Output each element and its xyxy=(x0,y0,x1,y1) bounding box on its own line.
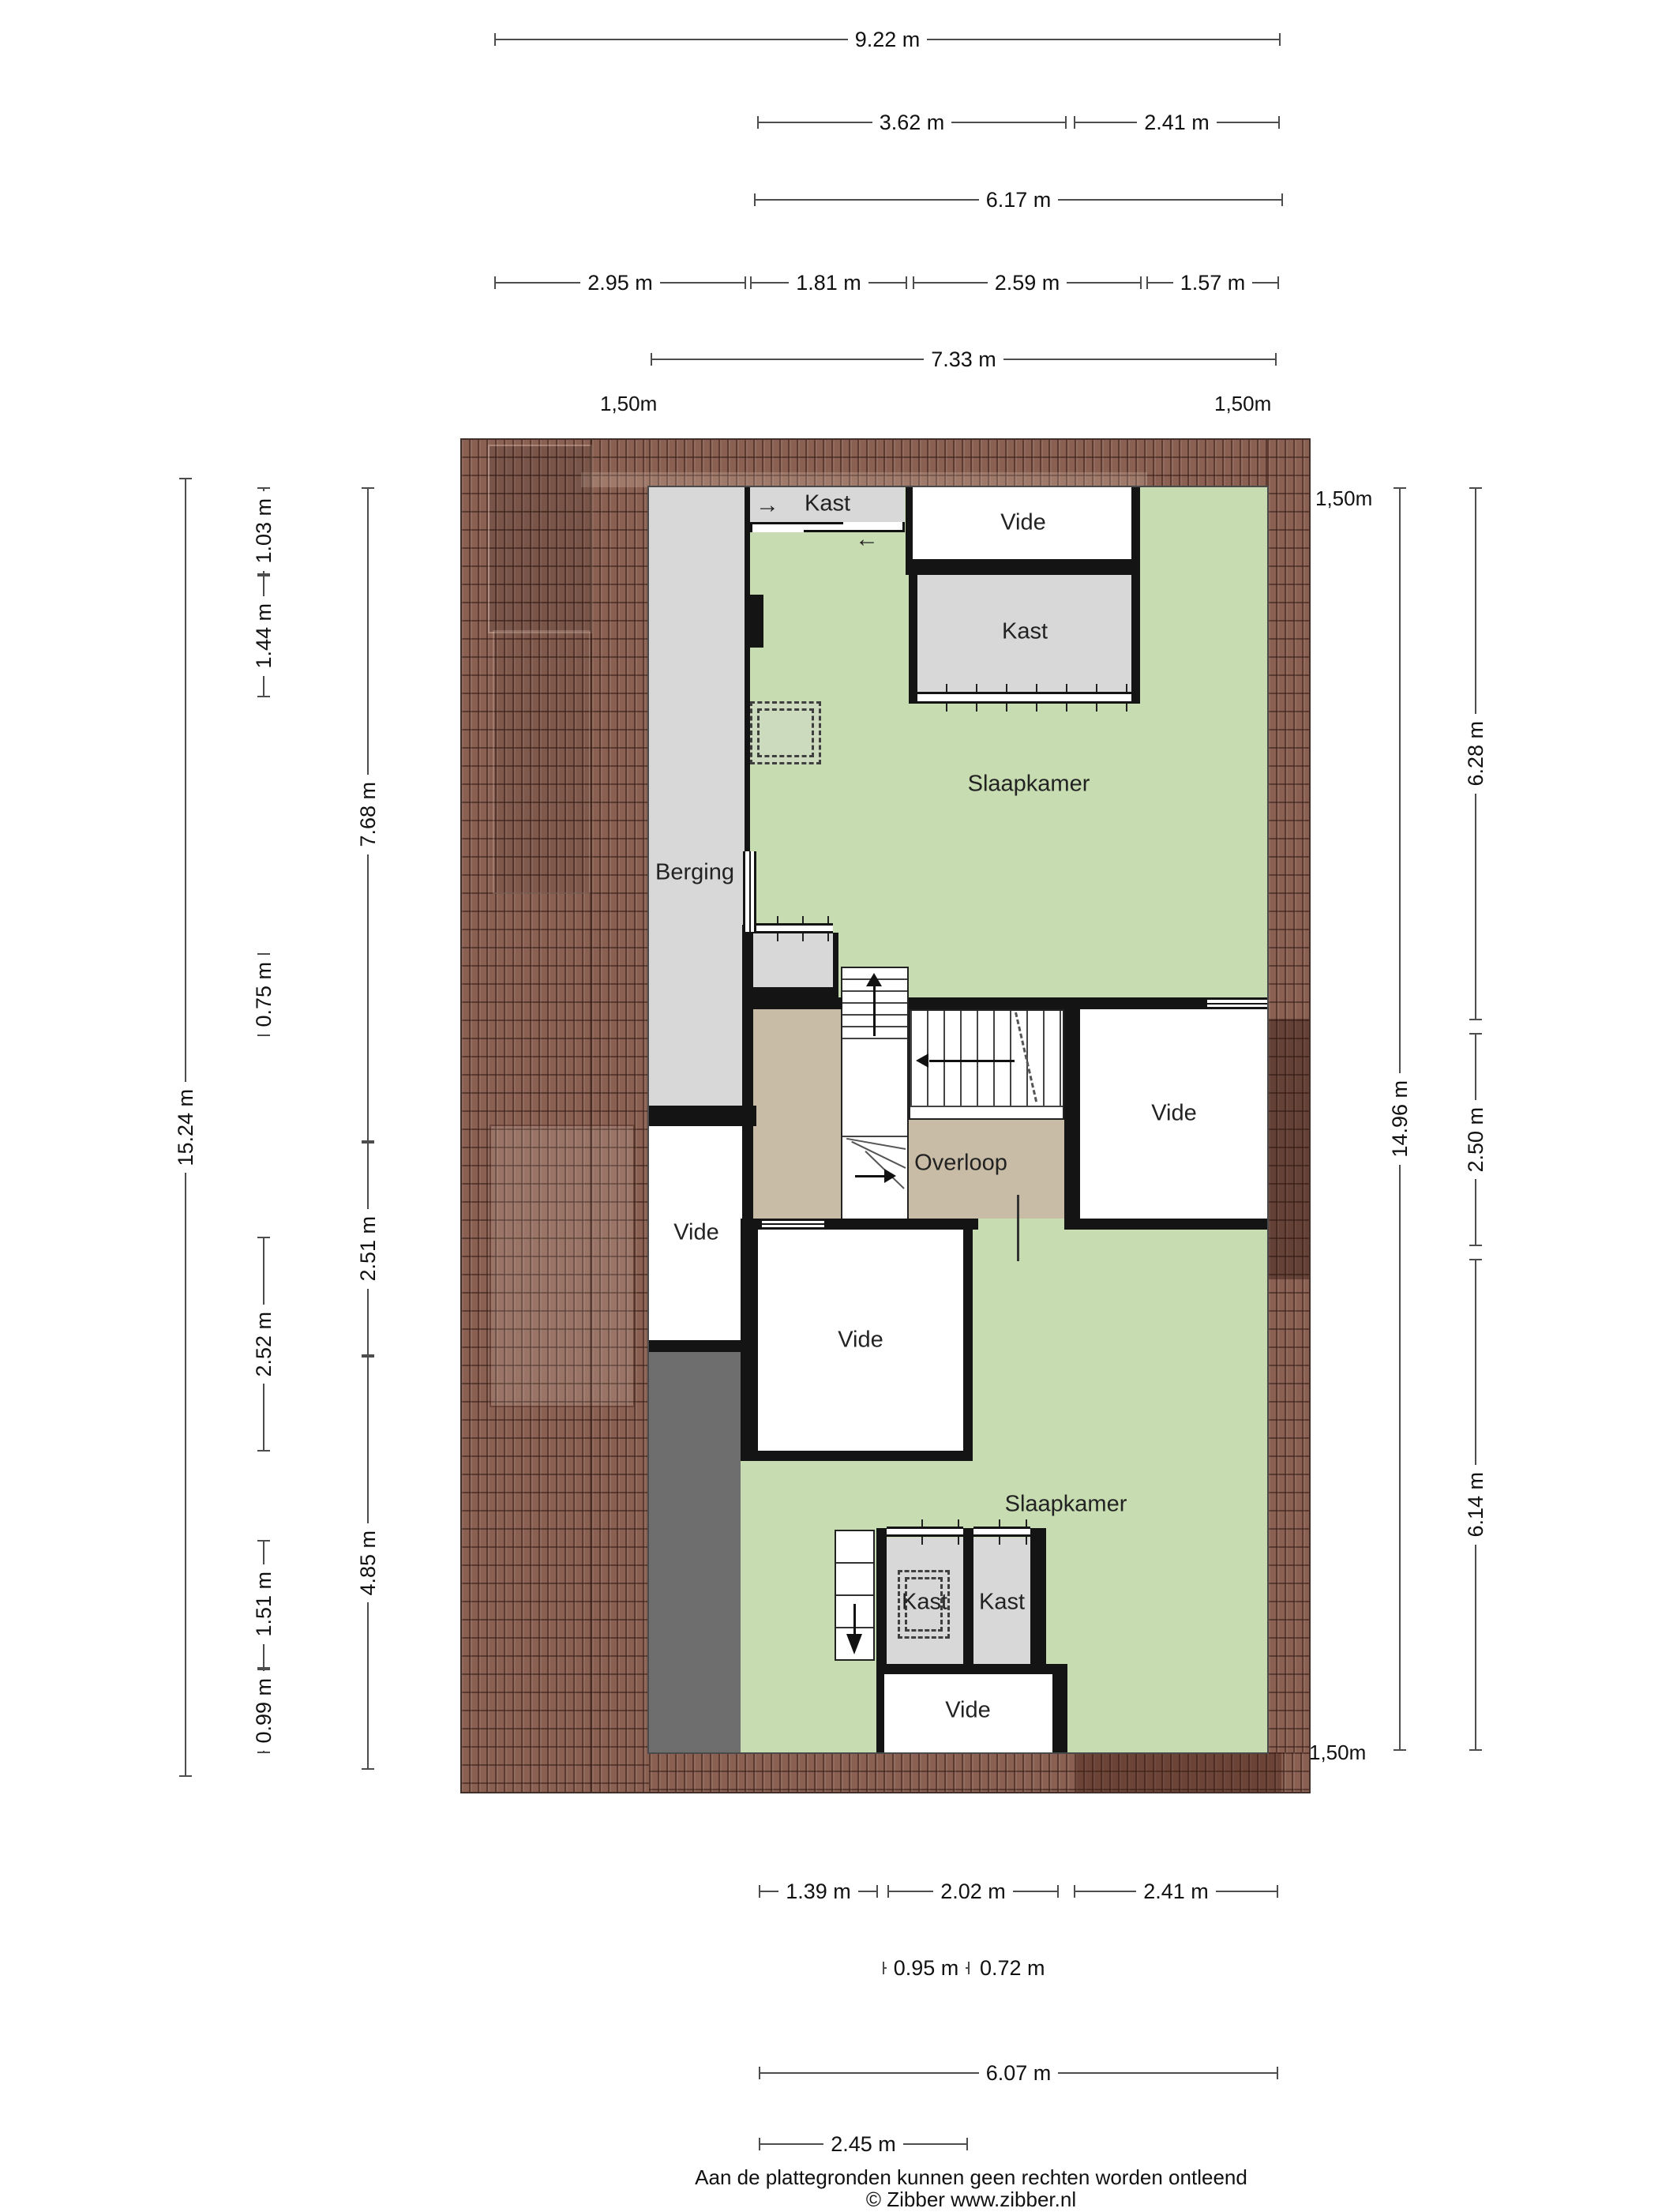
wall xyxy=(750,595,763,648)
railing-kast-upper xyxy=(917,692,1131,704)
dim-top-row2-1: 2.41 m xyxy=(1074,111,1280,134)
stair-left-arrow-icon xyxy=(916,1053,928,1068)
dim-bottom-row1-1: 2.02 m xyxy=(887,1880,1059,1903)
dim-top-row4-1: 1.81 m xyxy=(750,271,907,295)
room-label-kast-upper: Kast xyxy=(1002,619,1048,645)
dim-top-row4-0: 2.95 m xyxy=(494,271,746,295)
height-marker-top-right: 1,50m xyxy=(1214,392,1271,416)
dim-left-mid-2: 4.85 m xyxy=(356,1356,380,1770)
room-dark-strip xyxy=(649,1352,745,1752)
sliding-door xyxy=(750,522,905,532)
staircase-main xyxy=(841,967,909,1222)
room-label-vide-left: Vide xyxy=(673,1220,719,1246)
wall xyxy=(824,1219,978,1230)
stair-treads xyxy=(910,1011,1063,1107)
dim-left-mid-0: 7.68 m xyxy=(356,487,380,1142)
wall xyxy=(909,997,1207,1009)
footer-copyright: © Zibber www.zibber.nl xyxy=(537,2188,1405,2212)
window-berging-wall xyxy=(743,851,756,932)
stair-arrow-stem xyxy=(929,1060,1015,1062)
stair-landing-line xyxy=(842,1136,907,1137)
wall xyxy=(649,1106,756,1126)
dim-right-inner-0: 6.28 m xyxy=(1464,487,1487,1020)
dim-bottom-row1-2: 2.41 m xyxy=(1074,1880,1278,1903)
room-label-kast-lower-left: Kast xyxy=(902,1590,947,1616)
railing-kast-lower-right xyxy=(973,1527,1030,1537)
dim-left-mid-1: 2.51 m xyxy=(356,1142,380,1356)
stair-up-arrow-stem xyxy=(873,984,876,1036)
wall xyxy=(876,1664,884,1752)
footer-disclaimer: Aan de plattegronden kunnen geen rechten… xyxy=(537,2165,1405,2190)
railing-kast-lower-left xyxy=(887,1527,963,1537)
dim-left-inner-5: 0.99 m xyxy=(252,1669,276,1753)
wall xyxy=(963,1528,973,1674)
wall xyxy=(1064,1219,1267,1230)
room-label-vide-middle: Vide xyxy=(838,1328,883,1354)
dim-top-row4-3: 1.57 m xyxy=(1146,271,1279,295)
ladder-arrow-stem xyxy=(853,1604,856,1636)
room-label-vide-top: Vide xyxy=(1000,510,1046,536)
door-arrow-right-icon: → xyxy=(756,492,779,519)
wall xyxy=(742,987,833,997)
dim-top-total: 9.22 m xyxy=(494,28,1281,51)
wall xyxy=(909,575,917,704)
wall xyxy=(1131,487,1140,704)
wall xyxy=(876,1664,1067,1674)
winder-arrow-icon xyxy=(884,1169,896,1183)
door-opening-marker xyxy=(1017,1195,1019,1261)
dim-top-row4-2: 2.59 m xyxy=(913,271,1142,295)
dim-right-inner-1: 2.50 m xyxy=(1464,1033,1487,1246)
dim-bottom-row4: 2.45 m xyxy=(759,2132,968,2156)
door-arrow-left-icon: ← xyxy=(855,526,879,553)
wall xyxy=(963,1219,973,1461)
wall xyxy=(833,933,838,997)
dim-bottom-row2-1: 0.72 m xyxy=(973,1956,1052,1980)
stair-landing-line xyxy=(842,1038,907,1039)
room-label-berging: Berging xyxy=(655,860,734,886)
height-marker-right-upper: 1,50m xyxy=(1315,486,1372,511)
dim-bottom-row1-0: 1.39 m xyxy=(759,1880,878,1903)
wall xyxy=(741,1219,758,1461)
wall xyxy=(745,997,842,1009)
staircase-flight xyxy=(909,1009,1064,1120)
dim-left-total: 15.24 m xyxy=(174,478,197,1777)
wall xyxy=(876,1528,887,1674)
dim-right-inner-2: 6.14 m xyxy=(1464,1259,1487,1751)
ladder-down xyxy=(835,1530,875,1661)
height-marker-top-left: 1,50m xyxy=(600,392,657,416)
dim-left-inner-3: 2.52 m xyxy=(252,1237,276,1452)
dim-bottom-row3: 6.07 m xyxy=(759,2061,1278,2085)
dim-top-row2-0: 3.62 m xyxy=(757,111,1067,134)
wall xyxy=(1052,1664,1067,1752)
room-label-vide-bottom: Vide xyxy=(945,1698,991,1724)
room-berging xyxy=(649,487,745,1126)
room-label-overloop: Overloop xyxy=(914,1151,1007,1177)
room-label-slaapkamer-upper: Slaapkamer xyxy=(968,772,1090,798)
dim-bottom-row2-0: 0.95 m xyxy=(883,1956,970,1980)
floorplan-page: { "floorplan": { "rooms": { "kast_top": … xyxy=(0,0,1658,2211)
railing-stairwell-guard xyxy=(753,923,833,933)
dim-top-row5: 7.33 m xyxy=(651,347,1277,371)
window-vide-right xyxy=(1207,997,1267,1009)
window-overloop-vide xyxy=(762,1219,824,1230)
room-label-vide-right: Vide xyxy=(1151,1101,1197,1127)
winder-arrow-stem xyxy=(855,1175,885,1177)
room-label-kast-lower-right: Kast xyxy=(979,1590,1025,1616)
skylight-dashed-upper xyxy=(750,701,821,764)
height-marker-right-lower: 1,50m xyxy=(1309,1741,1366,1765)
wall xyxy=(1030,1528,1046,1674)
wall xyxy=(742,925,753,1230)
room-label-kast-top: Kast xyxy=(805,491,850,517)
dim-left-inner-1: 1.44 m xyxy=(252,575,276,697)
room-label-slaapkamer-lower: Slaapkamer xyxy=(1005,1492,1127,1518)
dim-top-row3: 6.17 m xyxy=(754,188,1283,212)
dim-right-total: 14.96 m xyxy=(1388,487,1412,1751)
wall xyxy=(741,1451,973,1461)
wall xyxy=(906,559,1140,575)
dim-left-inner-4: 1.51 m xyxy=(252,1540,276,1669)
wall xyxy=(1064,997,1080,1230)
ladder-down-arrow-icon xyxy=(846,1634,862,1654)
dim-left-inner-2: 0.75 m xyxy=(252,953,276,1017)
dim-left-inner-0: 1.03 m xyxy=(252,487,276,575)
stair-landing-line xyxy=(910,1106,1063,1107)
